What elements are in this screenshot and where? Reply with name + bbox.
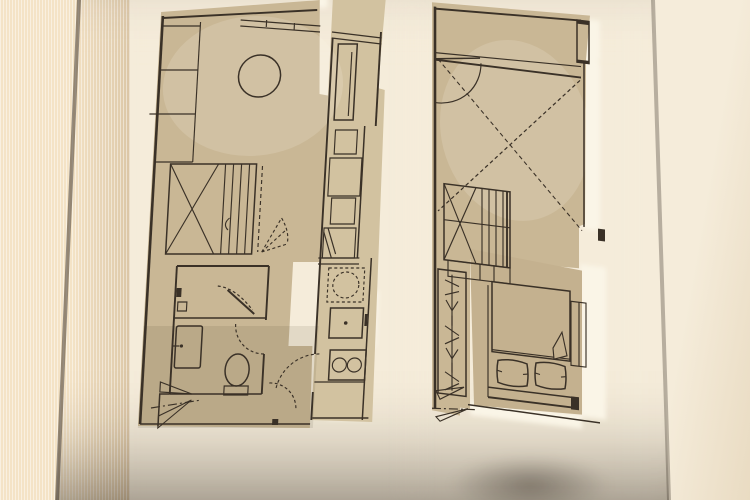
right-floor-plan [430,0,615,485]
floorplan-plaque-photo [0,0,750,500]
left-floor-plan [113,0,408,448]
left-floor-plan-svg [113,0,408,448]
right-floor-plan-svg [430,0,615,485]
door-frame-mark [598,229,605,242]
bed-cut-piece [470,249,582,419]
panel-sheen [612,0,652,500]
